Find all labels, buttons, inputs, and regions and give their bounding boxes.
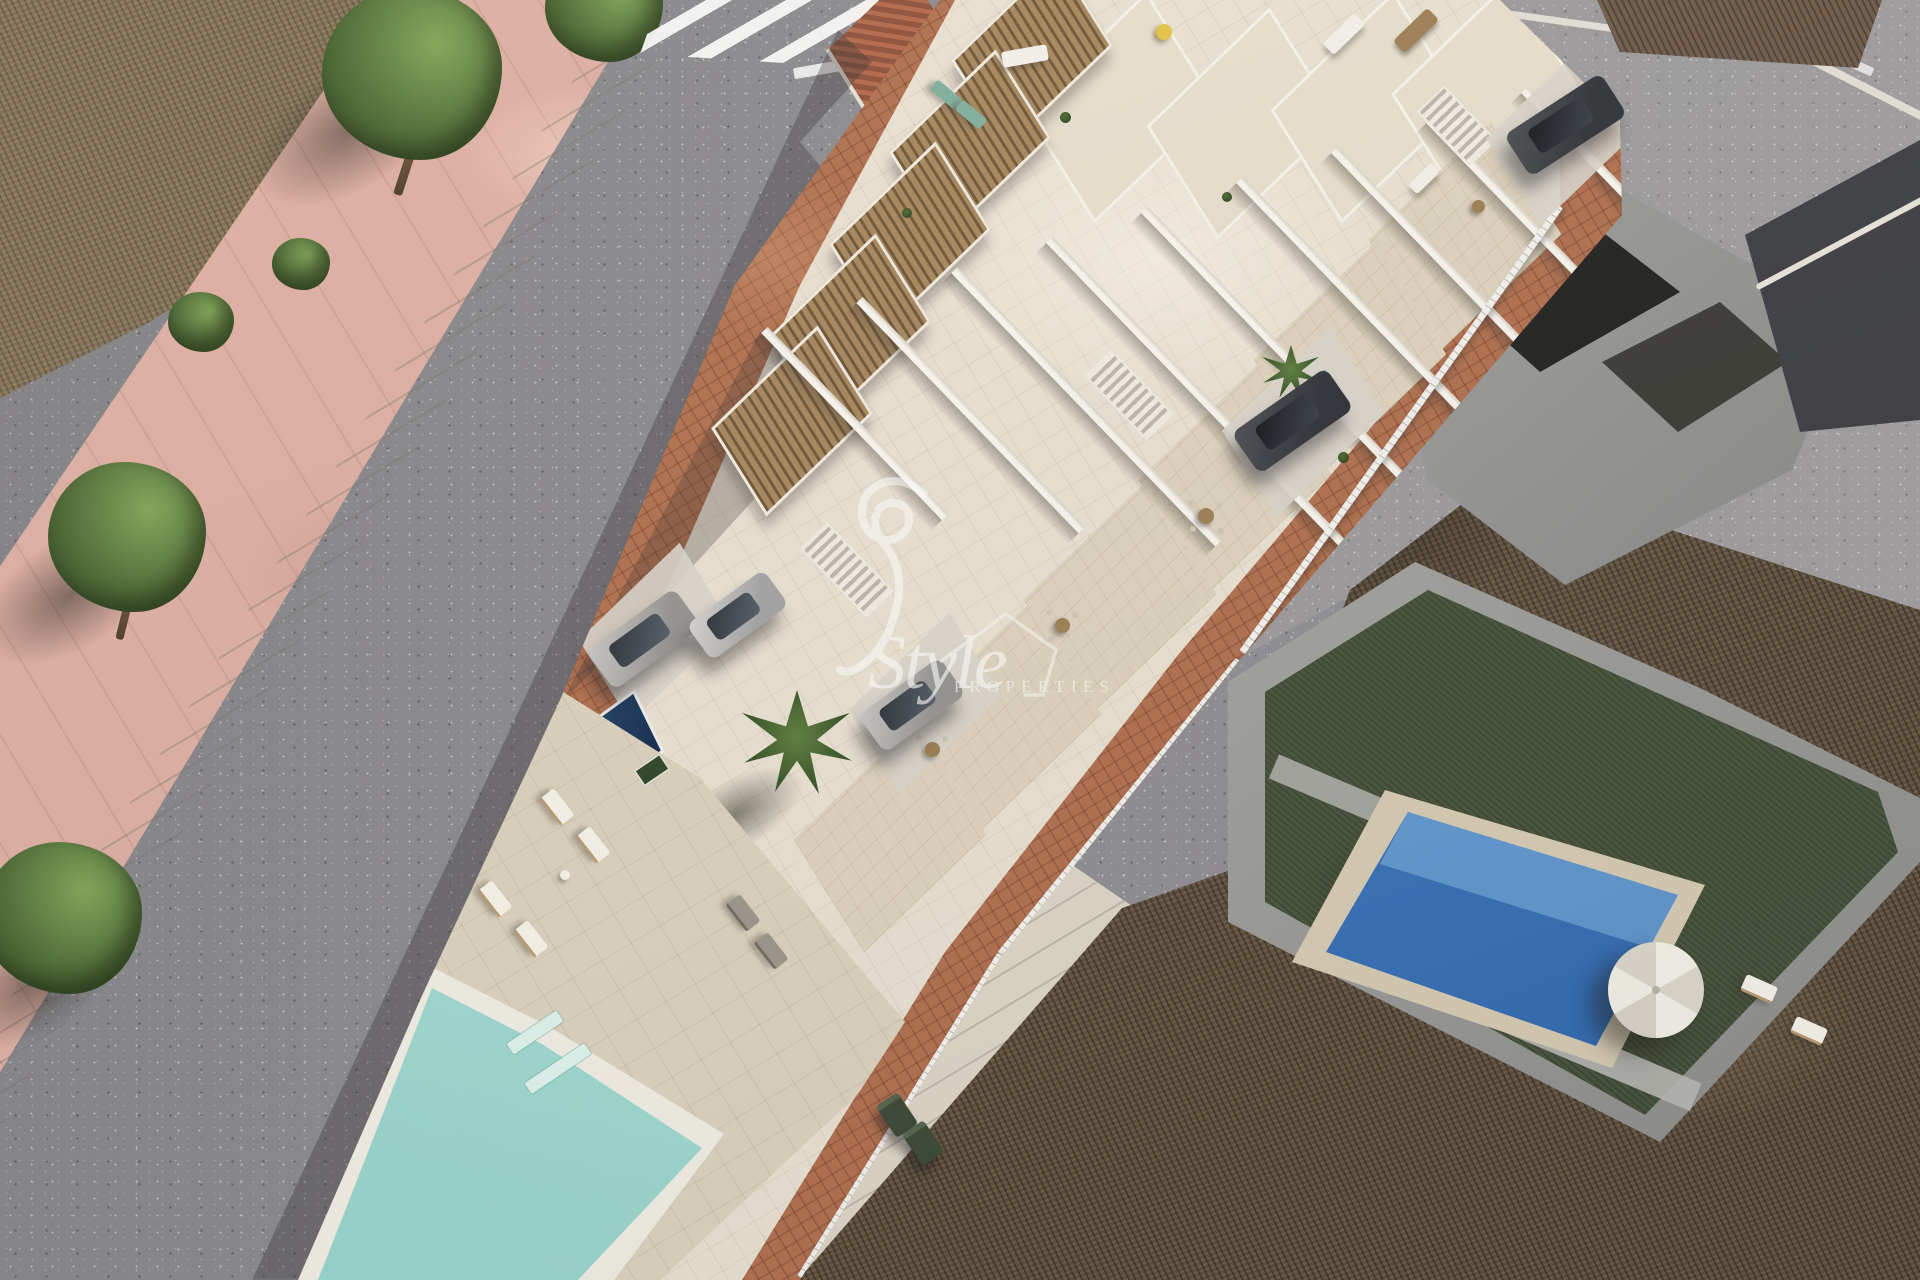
terrace-chair: [942, 736, 948, 742]
yellow-pouf: [1156, 24, 1172, 40]
style-properties-watermark: Style PROPERTIES: [828, 452, 1138, 722]
roof-table: [1472, 200, 1485, 213]
watermark-caps-word: PROPERTIES: [954, 677, 1115, 696]
potted-plant: [1338, 452, 1349, 463]
terrace-table: [1198, 508, 1214, 524]
terrace-chair: [1188, 500, 1194, 506]
side-table: [560, 870, 570, 880]
terrace-chair: [1190, 526, 1196, 532]
terrace-table: [925, 742, 940, 757]
bush: [272, 238, 330, 290]
terrace-chair: [1216, 502, 1222, 508]
terrace-chair: [1218, 528, 1224, 534]
aerial-property-render: Style PROPERTIES: [0, 0, 1920, 1280]
bush: [168, 292, 234, 352]
potted-plant: [902, 208, 912, 218]
white-parasol: [1608, 942, 1704, 1038]
terrace-chair: [916, 734, 922, 740]
potted-plant: [1060, 112, 1071, 123]
potted-plant: [1222, 192, 1232, 202]
